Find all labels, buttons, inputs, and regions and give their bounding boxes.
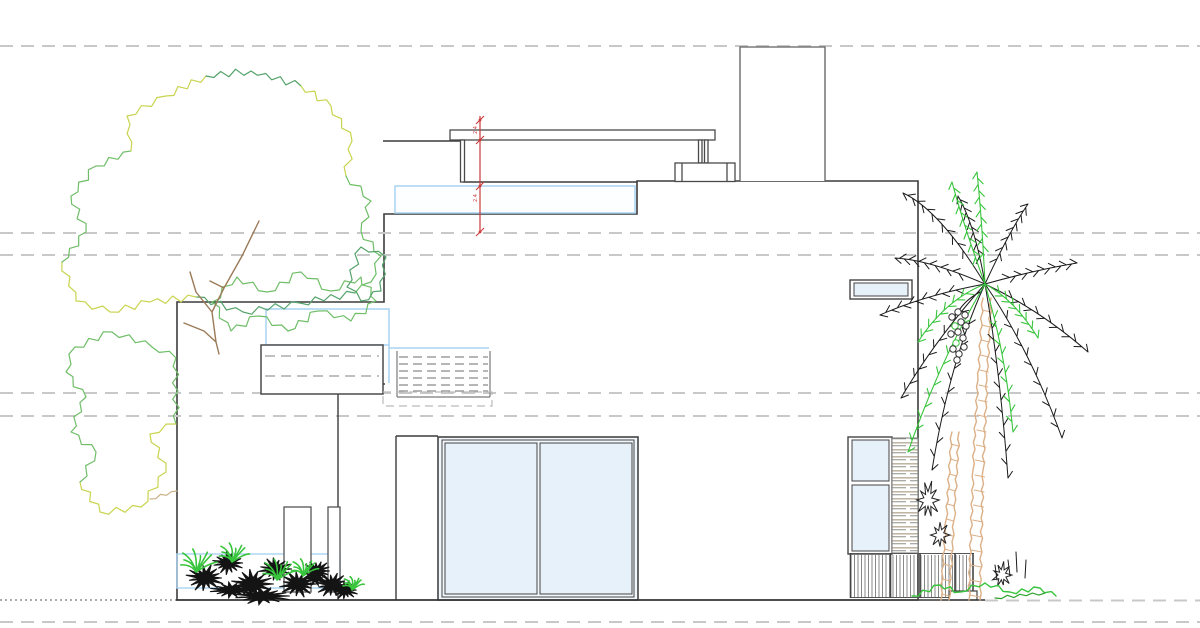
vegetation-stroke bbox=[301, 86, 352, 176]
vegetation-stroke bbox=[980, 298, 992, 600]
vegetation-stroke bbox=[80, 424, 176, 514]
vegetation-stroke bbox=[973, 172, 988, 284]
palm-dates bbox=[963, 323, 969, 329]
roof-box bbox=[675, 163, 735, 182]
roof-slab bbox=[450, 130, 715, 140]
slab-post-right-1 bbox=[699, 140, 703, 163]
palm-dates bbox=[956, 351, 962, 357]
vegetation-stroke bbox=[985, 259, 1077, 284]
vegetation-stroke bbox=[150, 491, 177, 499]
window-pane-bottom bbox=[852, 485, 889, 551]
door-pane-left bbox=[445, 443, 537, 594]
door-pane-right bbox=[540, 443, 632, 594]
dimension-label-2: 2.4 bbox=[473, 194, 479, 202]
palm-scrub bbox=[917, 481, 940, 516]
dimension-label-1: 2.4 bbox=[473, 126, 479, 134]
palm-dates bbox=[961, 344, 967, 350]
palm-dates bbox=[962, 312, 968, 318]
vegetation-stroke bbox=[985, 284, 1039, 338]
chimney bbox=[740, 47, 825, 181]
vegetation-stroke bbox=[62, 262, 196, 312]
palm-dates bbox=[960, 335, 966, 341]
sliding-glass-door bbox=[438, 437, 638, 600]
clerestory-window-pane bbox=[854, 283, 908, 296]
vegetation-stroke bbox=[62, 151, 131, 262]
slab-post-left bbox=[461, 140, 465, 182]
roof-slab-pergola bbox=[450, 130, 735, 182]
palm-dates bbox=[950, 346, 956, 352]
elevation-drawing: 2.4 2.4 bbox=[0, 0, 1200, 628]
vegetation-stroke bbox=[985, 284, 1012, 478]
elevation-canvas: 2.4 2.4 bbox=[0, 0, 1200, 628]
palm-dates bbox=[948, 331, 954, 337]
slab-post-right-2 bbox=[705, 140, 709, 163]
balcony-parapet bbox=[261, 345, 383, 394]
palm-dates bbox=[955, 329, 961, 335]
dim-node bbox=[479, 185, 482, 188]
ground-line bbox=[0, 600, 1200, 601]
vegetation-stroke bbox=[995, 593, 1045, 599]
vegetation-stroke bbox=[985, 204, 1028, 284]
dim-node bbox=[479, 231, 482, 234]
dim-node bbox=[479, 119, 482, 122]
dim-node bbox=[479, 139, 482, 142]
vegetation-stroke bbox=[127, 76, 206, 151]
vegetation-stroke bbox=[66, 347, 96, 482]
vegetation-stroke bbox=[206, 69, 301, 86]
palm-dates bbox=[949, 314, 955, 320]
window-pane-top bbox=[852, 440, 889, 481]
palm-dates bbox=[955, 309, 961, 315]
vegetation-stroke bbox=[75, 332, 179, 424]
palm-scrub bbox=[931, 522, 950, 546]
upper-window-band bbox=[395, 186, 635, 213]
palm-dates bbox=[952, 323, 958, 329]
stone-slat-panel bbox=[892, 438, 918, 553]
palm-dates bbox=[954, 357, 960, 363]
palm-dates bbox=[953, 340, 959, 346]
